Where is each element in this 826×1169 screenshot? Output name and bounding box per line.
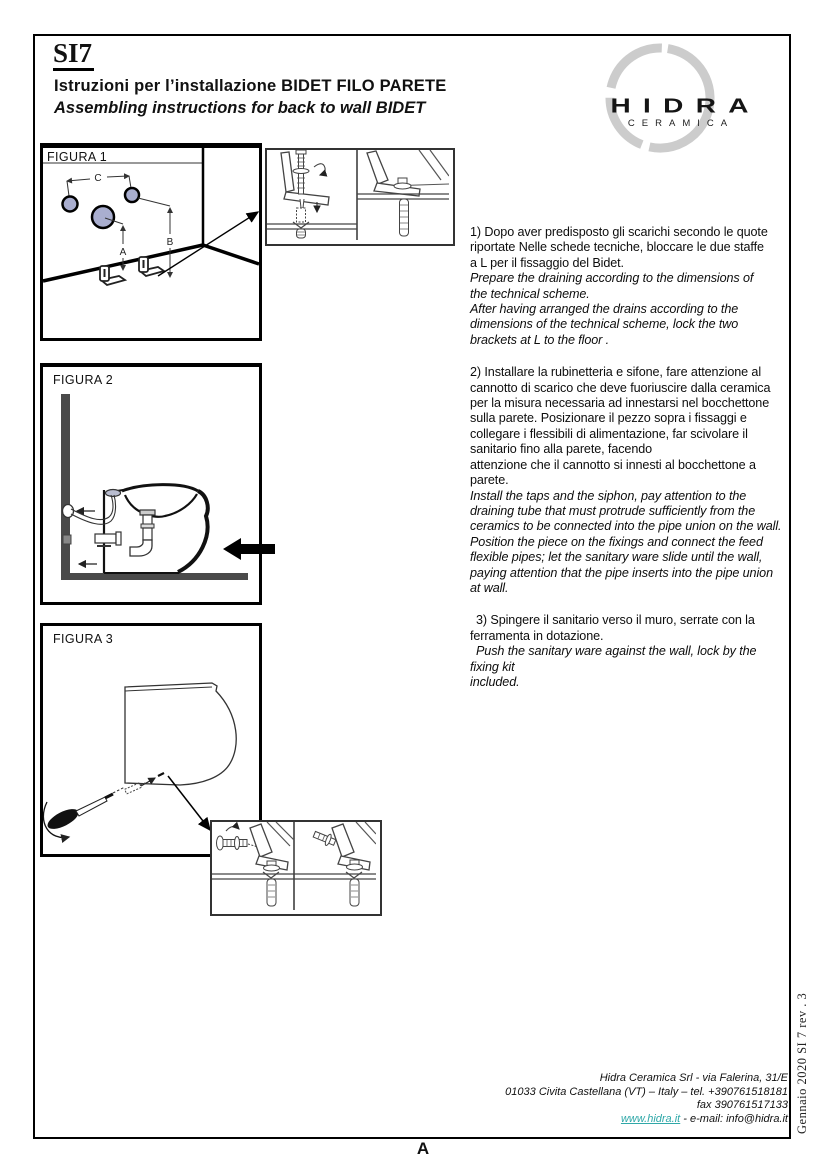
logo-subbrand-text: CERAMICA [560, 118, 795, 129]
screwdriver-icon [43, 787, 125, 838]
figure-3-label: FIGURA 3 [53, 632, 113, 646]
step-1-italian: 1) Dopo aver predisposto gli scarichi se… [470, 225, 792, 271]
step-1: 1) Dopo aver predisposto gli scarichi se… [470, 225, 792, 348]
address-line-1: Hidra Ceramica Srl - via Falerina, 31/E [448, 1072, 788, 1086]
model-code: SI7 [53, 38, 94, 71]
step-1-english: Prepare the draining according to the di… [470, 271, 792, 348]
figure-3-drawing [43, 626, 259, 848]
step-3: 3) Spingere il sanitario verso il muro, … [470, 613, 792, 690]
svg-text:A: A [120, 247, 127, 258]
step-2-italian: 2) Installare la rubinetteria e sifone, … [470, 365, 792, 488]
figure-1-detail-inset [265, 148, 455, 246]
step-2-english: Install the taps and the siphon, pay att… [470, 489, 792, 597]
logo-brand-text: HIDRA [546, 95, 814, 119]
bracket-fixing-detail-drawing [267, 150, 449, 240]
email-text: - e-mail: info@hidra.it [680, 1113, 788, 1125]
hidra-logo: HIDRA CERAMICA [560, 40, 788, 162]
figure-1-drawing: C A B [43, 148, 259, 338]
address-line-2: 01033 Civita Castellana (VT) – Italy – t… [448, 1086, 788, 1100]
revision-note: Gennaio 2020 SI 7 rev . 3 [795, 982, 810, 1134]
figure-1-label: FIGURA 1 [47, 150, 107, 164]
side-screw-detail-drawing [212, 822, 376, 910]
instruction-steps: 1) Dopo aver predisposto gli scarichi se… [470, 225, 792, 707]
website-link[interactable]: www.hidra.it [621, 1113, 680, 1125]
figure-3-detail-inset [210, 820, 382, 916]
page-letter: A [368, 1139, 478, 1159]
title-english: Assembling instructions for back to wall… [54, 99, 425, 118]
address-line-3: fax 390761517133 [448, 1099, 788, 1113]
figure-1: FIGURA 1 C A B [40, 143, 262, 341]
company-address: Hidra Ceramica Srl - via Falerina, 31/E … [448, 1072, 788, 1126]
step-2: 2) Installare la rubinetteria e sifone, … [470, 365, 792, 596]
svg-text:C: C [94, 173, 101, 184]
figure-2: FIGURA 2 [40, 363, 262, 605]
wall-pipe-union [63, 505, 74, 518]
svg-text:B: B [167, 237, 174, 248]
tap-hole [106, 490, 121, 497]
address-line-4: www.hidra.it - e-mail: info@hidra.it [448, 1113, 788, 1127]
title-italian: Istruzioni per l’installazione BIDET FIL… [54, 77, 447, 96]
figure-2-label: FIGURA 2 [53, 373, 113, 387]
step-3-italian: 3) Spingere il sanitario verso il muro, … [470, 613, 792, 644]
figure-2-drawing [43, 367, 259, 598]
instruction-sheet: SI7 Istruzioni per l’installazione BIDET… [0, 0, 826, 1169]
floor-bracket-icon [100, 266, 125, 285]
floor-bracket-icon [139, 257, 164, 276]
step-3-english: Push the sanitary ware against the wall,… [470, 644, 792, 690]
